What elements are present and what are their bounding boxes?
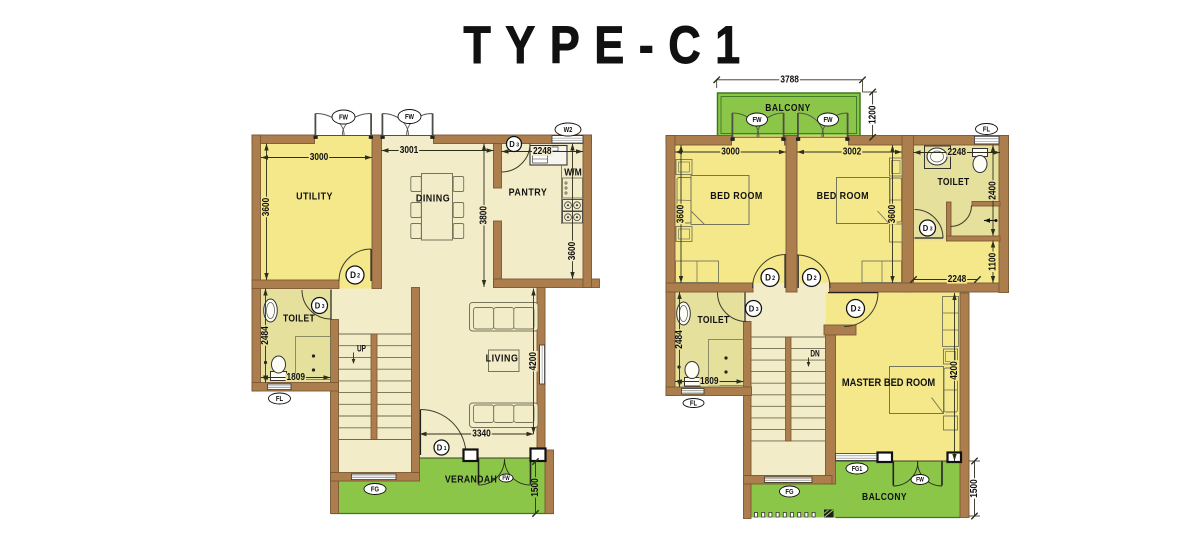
- svg-text:1100: 1100: [987, 253, 998, 271]
- svg-text:3600: 3600: [887, 205, 898, 224]
- svg-text:3001: 3001: [400, 145, 419, 156]
- svg-text:1809: 1809: [287, 372, 306, 383]
- svg-text:D: D: [765, 272, 771, 283]
- svg-text:FL: FL: [983, 126, 990, 134]
- svg-text:FW: FW: [823, 116, 833, 124]
- svg-text:3600: 3600: [675, 205, 686, 224]
- svg-text:TOILET: TOILET: [937, 176, 969, 187]
- svg-text:3: 3: [322, 304, 325, 310]
- svg-text:3: 3: [516, 142, 519, 148]
- svg-text:FG1: FG1: [852, 465, 863, 473]
- svg-text:2400: 2400: [987, 181, 998, 200]
- svg-text:MASTER BED ROOM: MASTER BED ROOM: [842, 377, 935, 389]
- svg-text:FW: FW: [502, 476, 510, 483]
- svg-text:FG: FG: [785, 488, 793, 496]
- svg-text:PANTRY: PANTRY: [509, 187, 548, 199]
- svg-text:3000: 3000: [721, 146, 740, 157]
- svg-text:BALCONY: BALCONY: [765, 102, 811, 113]
- svg-text:UP: UP: [357, 343, 366, 353]
- svg-text:2: 2: [772, 276, 775, 282]
- svg-text:W2: W2: [564, 126, 573, 134]
- svg-text:UTILITY: UTILITY: [296, 191, 333, 203]
- svg-text:D: D: [851, 303, 857, 314]
- svg-text:3800: 3800: [478, 206, 489, 225]
- svg-text:DN: DN: [810, 348, 820, 358]
- svg-text:FW: FW: [752, 116, 762, 124]
- svg-text:D: D: [350, 270, 356, 281]
- svg-text:3002: 3002: [843, 146, 862, 157]
- svg-text:FW: FW: [405, 113, 415, 121]
- svg-text:FW: FW: [339, 114, 349, 122]
- svg-text:TYPE-C1: TYPE-C1: [463, 16, 754, 75]
- svg-text:3: 3: [756, 307, 759, 313]
- svg-text:2: 2: [858, 307, 861, 313]
- svg-text:TOILET: TOILET: [697, 314, 729, 325]
- svg-text:3340: 3340: [472, 428, 491, 439]
- svg-text:2248: 2248: [533, 146, 552, 157]
- svg-text:FL: FL: [276, 395, 283, 403]
- svg-text:1500: 1500: [530, 478, 541, 497]
- svg-text:1: 1: [444, 446, 447, 452]
- svg-text:3788: 3788: [780, 74, 799, 85]
- svg-text:1200: 1200: [867, 105, 878, 124]
- svg-text:D: D: [749, 304, 755, 313]
- svg-text:DINING: DINING: [416, 193, 450, 205]
- svg-text:2248: 2248: [948, 274, 967, 285]
- svg-text:2: 2: [814, 276, 817, 282]
- svg-text:D: D: [437, 443, 443, 452]
- svg-text:3: 3: [930, 226, 933, 232]
- svg-text:D: D: [509, 140, 515, 149]
- svg-text:2484: 2484: [260, 326, 271, 345]
- svg-text:2484: 2484: [674, 330, 685, 349]
- svg-text:W/M: W/M: [564, 167, 582, 178]
- svg-text:VERANDAH: VERANDAH: [445, 474, 497, 486]
- svg-text:BALCONY: BALCONY: [862, 491, 907, 502]
- svg-text:D: D: [807, 272, 813, 283]
- svg-text:BED ROOM: BED ROOM: [710, 190, 762, 202]
- svg-text:BED ROOM: BED ROOM: [817, 190, 869, 202]
- svg-text:3000: 3000: [310, 152, 329, 163]
- svg-text:FL: FL: [690, 400, 697, 408]
- svg-text:2: 2: [357, 273, 360, 279]
- svg-text:1500: 1500: [969, 479, 980, 498]
- svg-text:D: D: [315, 301, 321, 310]
- svg-text:1809: 1809: [700, 376, 719, 387]
- svg-text:3600: 3600: [567, 242, 578, 261]
- svg-text:4200: 4200: [949, 361, 960, 380]
- svg-text:2248: 2248: [948, 147, 967, 158]
- svg-text:FG: FG: [371, 486, 379, 494]
- svg-text:4200: 4200: [528, 352, 539, 371]
- svg-text:FW: FW: [916, 477, 924, 484]
- svg-text:LIVING: LIVING: [486, 353, 519, 365]
- svg-text:3600: 3600: [261, 198, 272, 217]
- svg-text:D: D: [923, 224, 929, 233]
- svg-text:TOILET: TOILET: [283, 313, 315, 324]
